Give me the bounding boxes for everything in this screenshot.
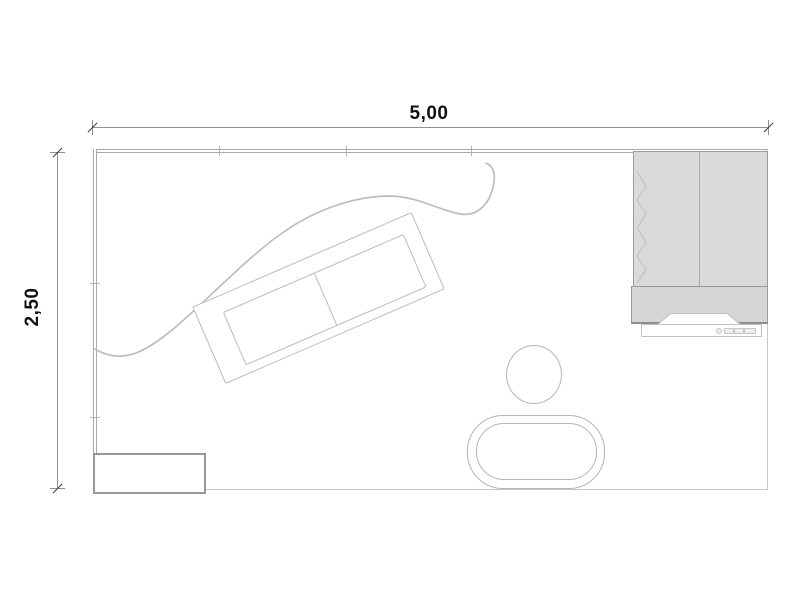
sideboard[interactable] [93, 453, 206, 494]
stool[interactable] [506, 345, 562, 404]
console-button-icon [724, 328, 734, 334]
wall-joint-tick [471, 146, 472, 156]
console-button-icon [734, 328, 744, 334]
sofa[interactable] [192, 212, 445, 384]
coffee-table-inner-edge [476, 423, 597, 480]
wall-joint-tick [90, 283, 100, 284]
dimension-label-width: 5,00 [410, 103, 449, 125]
wall-joint-tick [219, 146, 220, 156]
dimension-label-depth: 2,50 [22, 288, 44, 327]
console-button-icon [744, 328, 756, 334]
dimension-line-width [92, 127, 768, 128]
wall-left [93, 149, 97, 490]
dimension-line-depth [57, 152, 58, 488]
sofa-cushion-divider [314, 273, 337, 325]
wardrobe-door-divider [699, 152, 700, 287]
wardrobe[interactable] [633, 151, 768, 288]
tv-cabinet[interactable] [631, 286, 768, 324]
wall-joint-tick [346, 146, 347, 156]
coffee-table[interactable] [467, 415, 605, 489]
tv-cabinet-notch [632, 312, 764, 325]
wall-joint-tick [90, 417, 100, 418]
console-button-icon [716, 328, 722, 334]
wardrobe-hinge-zigzag-icon [634, 152, 654, 284]
tv-console[interactable] [641, 324, 762, 337]
floor-plan-canvas: 5,00 2,50 [0, 0, 800, 610]
sofa-seat [223, 234, 427, 365]
